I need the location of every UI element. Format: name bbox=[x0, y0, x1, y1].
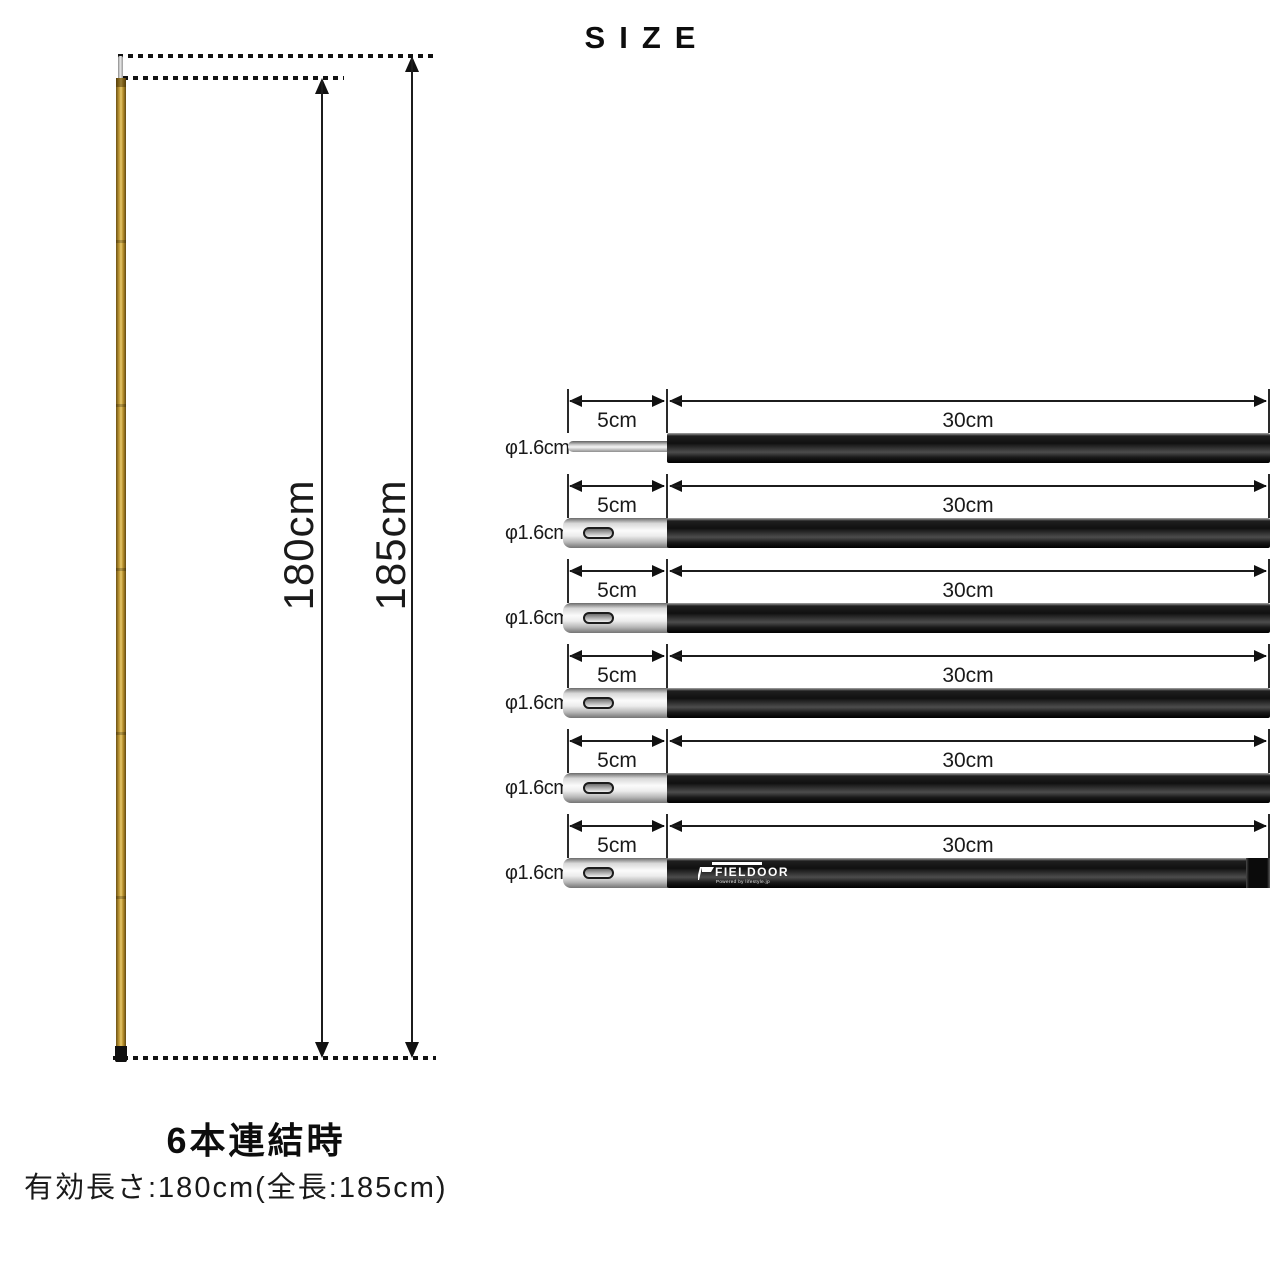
connector-length-label: 5cm bbox=[567, 409, 667, 433]
logo-text: FIELDOOR bbox=[715, 866, 789, 878]
sleeve-hole bbox=[583, 612, 614, 624]
caption-detail: 有効長さ:180cm(全長:185cm) bbox=[24, 1164, 544, 1206]
pole-segment-4: 5cm 30cm φ1.6cm bbox=[505, 644, 1280, 726]
dimension-arrow-body bbox=[669, 735, 1267, 747]
dimension-arrow-connector bbox=[569, 565, 665, 577]
pole-body bbox=[667, 433, 1270, 463]
pole-joint bbox=[116, 732, 126, 735]
dimension-arrow-body bbox=[669, 395, 1267, 407]
fieldoor-logo: FIELDOOR Powered by lifestyle.jp bbox=[698, 861, 838, 887]
connector-length-label: 5cm bbox=[567, 749, 667, 773]
dimension-arrow-connector bbox=[569, 480, 665, 492]
connector-length-label: 5cm bbox=[567, 834, 667, 858]
extension-dashed-line-total-top bbox=[118, 54, 436, 58]
connector-sleeve bbox=[563, 858, 668, 888]
flag-icon bbox=[698, 866, 714, 880]
body-length-label: 30cm bbox=[667, 749, 1269, 773]
extension-dashed-line-bottom bbox=[113, 1056, 436, 1060]
pole-body bbox=[667, 688, 1270, 718]
body-length-label: 30cm bbox=[667, 409, 1269, 433]
pole-joint bbox=[116, 240, 126, 243]
effective-length-label: 180cm bbox=[275, 460, 323, 630]
pole-joint bbox=[116, 896, 126, 899]
pole-segment-6: 5cm 30cm φ1.6cm FIELDOOR Powered by life… bbox=[505, 814, 1280, 896]
pole-body bbox=[667, 773, 1270, 803]
pole-segment-1: 5cm 30cm φ1.6cm bbox=[505, 389, 1280, 471]
connector-length-label: 5cm bbox=[567, 664, 667, 688]
total-length-label: 185cm bbox=[367, 460, 415, 630]
arrow-right-icon bbox=[1254, 565, 1267, 577]
arrow-right-icon bbox=[652, 395, 665, 407]
spigot-pin bbox=[568, 441, 668, 452]
dimension-arrow-body bbox=[669, 480, 1267, 492]
arrow-right-icon bbox=[1254, 650, 1267, 662]
pole-joint bbox=[116, 568, 126, 571]
arrow-down-icon bbox=[405, 1042, 419, 1058]
arrow-right-icon bbox=[652, 820, 665, 832]
dimension-arrow-connector bbox=[569, 735, 665, 747]
pole-body bbox=[667, 518, 1270, 548]
extension-dashed-line-effective-top bbox=[123, 76, 344, 80]
dimension-arrow-connector bbox=[569, 395, 665, 407]
pole-joint bbox=[116, 404, 126, 407]
connector-length-label: 5cm bbox=[567, 579, 667, 603]
diameter-label: φ1.6cm bbox=[505, 522, 562, 544]
pole-ferrule bbox=[116, 78, 126, 87]
dimension-arrow-connector bbox=[569, 820, 665, 832]
diameter-label: φ1.6cm bbox=[505, 607, 562, 629]
dimension-arrow-body bbox=[669, 565, 1267, 577]
arrow-right-icon bbox=[652, 735, 665, 747]
logo-subtext: Powered by lifestyle.jp bbox=[716, 879, 770, 884]
connector-sleeve bbox=[563, 773, 668, 803]
connector-sleeve bbox=[563, 688, 668, 718]
sleeve-hole bbox=[583, 867, 614, 879]
diameter-label: φ1.6cm bbox=[505, 692, 562, 714]
diameter-label: φ1.6cm bbox=[505, 777, 562, 799]
pole-bottom-tip bbox=[115, 1046, 127, 1062]
sleeve-hole bbox=[583, 782, 614, 794]
dimension-arrow-body bbox=[669, 820, 1267, 832]
diameter-label: φ1.6cm bbox=[505, 862, 562, 884]
arrow-right-icon bbox=[1254, 480, 1267, 492]
body-length-label: 30cm bbox=[667, 834, 1269, 858]
pole-body bbox=[667, 603, 1270, 633]
assembled-pole-figure: 180cm 185cm bbox=[105, 50, 450, 1080]
dimension-arrow-connector bbox=[569, 650, 665, 662]
sleeve-hole bbox=[583, 697, 614, 709]
arrow-right-icon bbox=[652, 480, 665, 492]
product-size-diagram: SIZE 180cm 185cm 6本連結時 有効長さ:180cm(全長:185… bbox=[0, 0, 1280, 1280]
pole-segment-3: 5cm 30cm φ1.6cm bbox=[505, 559, 1280, 641]
body-length-label: 30cm bbox=[667, 579, 1269, 603]
arrow-right-icon bbox=[1254, 820, 1267, 832]
sleeve-hole bbox=[583, 527, 614, 539]
body-length-label: 30cm bbox=[667, 664, 1269, 688]
arrow-right-icon bbox=[652, 650, 665, 662]
connector-sleeve bbox=[563, 603, 668, 633]
dimension-arrow-body bbox=[669, 650, 1267, 662]
arrow-right-icon bbox=[1254, 395, 1267, 407]
body-length-label: 30cm bbox=[667, 494, 1269, 518]
connector-length-label: 5cm bbox=[567, 494, 667, 518]
arrow-right-icon bbox=[1254, 735, 1267, 747]
arrow-down-icon bbox=[315, 1042, 329, 1058]
arrow-right-icon bbox=[652, 565, 665, 577]
pole-end-cap bbox=[1246, 858, 1270, 888]
pole-segment-2: 5cm 30cm φ1.6cm bbox=[505, 474, 1280, 556]
pole-segment-5: 5cm 30cm φ1.6cm bbox=[505, 729, 1280, 811]
diameter-label: φ1.6cm bbox=[505, 437, 562, 459]
connector-sleeve bbox=[563, 518, 668, 548]
pole-top-spigot-tip bbox=[118, 56, 123, 80]
caption-title: 6本連結時 bbox=[0, 1112, 512, 1164]
